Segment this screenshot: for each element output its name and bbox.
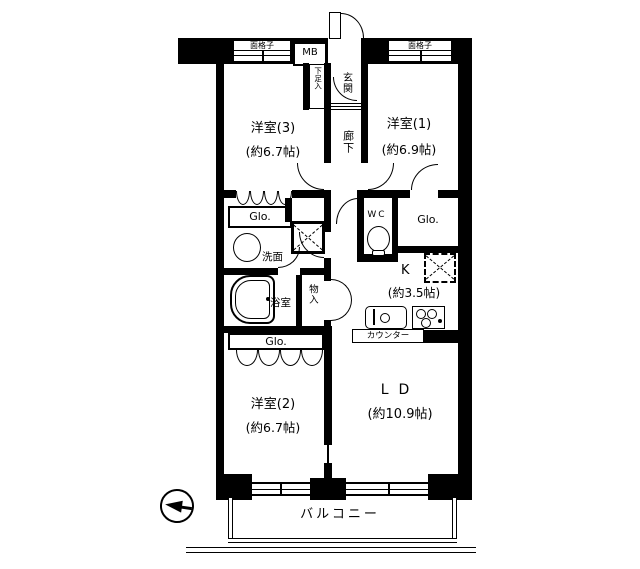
bathtub-icon bbox=[230, 275, 275, 324]
wall bbox=[324, 276, 331, 281]
wall-pillar bbox=[428, 474, 472, 500]
sliding-door bbox=[327, 445, 329, 463]
stove-icon bbox=[412, 306, 445, 329]
wall bbox=[216, 326, 332, 333]
room-ld-size: (約10.9帖) bbox=[350, 408, 450, 423]
meter-box-label: MB bbox=[295, 47, 325, 59]
entrance-step bbox=[331, 103, 361, 110]
counter-label: カウンター bbox=[353, 332, 423, 342]
room-western2-label: 洋室(2) bbox=[220, 398, 326, 413]
hallway-label: 廊下 bbox=[341, 130, 354, 154]
window-mullion bbox=[388, 482, 390, 496]
window-grille-label: 面格子 bbox=[389, 41, 451, 51]
wall bbox=[357, 198, 364, 260]
wall bbox=[216, 268, 278, 275]
closet-box: Glo. bbox=[228, 206, 292, 228]
wall bbox=[285, 198, 292, 222]
wall bbox=[324, 463, 332, 478]
sink-drain bbox=[380, 313, 390, 323]
closet-door-arc bbox=[411, 164, 438, 190]
room-western1-label: 洋室(1) bbox=[358, 118, 460, 133]
burner bbox=[421, 318, 431, 328]
toilet-label: WC bbox=[363, 210, 391, 220]
closet-label: Glo. bbox=[230, 336, 322, 349]
front-door-opening bbox=[328, 38, 361, 64]
window-grille-box: 面格子 bbox=[233, 40, 291, 62]
burner bbox=[427, 309, 437, 319]
wall-pillar bbox=[216, 474, 252, 500]
floor-plan: 面格子 MB 面格子 下足入 玄関 廊下 洋室(3) (約6.7帖) 洋室(1)… bbox=[0, 0, 640, 569]
refrigerator-icon bbox=[424, 253, 456, 283]
door-arc bbox=[336, 198, 358, 224]
sink-divider bbox=[373, 309, 375, 325]
bathtub-inner bbox=[235, 280, 270, 319]
door-arc bbox=[297, 163, 324, 190]
toilet-base bbox=[372, 250, 385, 256]
double-door-arc bbox=[331, 279, 352, 300]
closet-box: Glo. bbox=[228, 333, 324, 350]
wall bbox=[292, 190, 331, 198]
room-western2-size: (約6.7帖) bbox=[216, 421, 330, 435]
accordion-door bbox=[236, 350, 323, 366]
window-grille-label: 面格子 bbox=[234, 41, 290, 51]
door-arc bbox=[299, 232, 324, 258]
meter-box: MB bbox=[293, 42, 327, 66]
closet-label: Glo. bbox=[230, 211, 290, 224]
wall bbox=[216, 190, 236, 198]
wall bbox=[424, 330, 458, 343]
window bbox=[346, 482, 428, 496]
washbasin-icon bbox=[233, 233, 261, 262]
window-mullion bbox=[420, 51, 422, 61]
wall bbox=[300, 268, 331, 275]
door-arc bbox=[368, 163, 394, 190]
knob bbox=[438, 319, 442, 323]
front-door-arc bbox=[341, 13, 364, 38]
compass-icon bbox=[158, 487, 196, 525]
wall bbox=[458, 38, 472, 500]
room-western3-size: (約6.7帖) bbox=[216, 145, 330, 159]
wall bbox=[438, 190, 472, 198]
wall bbox=[296, 275, 302, 326]
window-mullion bbox=[262, 51, 264, 61]
balcony-rail bbox=[228, 498, 233, 542]
window-grille-box: 面格子 bbox=[388, 40, 452, 62]
counter-label-box: カウンター bbox=[352, 329, 424, 343]
balcony-rail bbox=[452, 498, 457, 542]
storage-label: 物入 bbox=[306, 284, 317, 305]
toilet-icon bbox=[367, 226, 390, 252]
shoe-storage-label: 下足入 bbox=[313, 67, 322, 90]
room-ld-label: LD bbox=[368, 382, 432, 398]
room-western3-label: 洋室(3) bbox=[220, 122, 326, 137]
kitchen-sink-icon bbox=[365, 306, 407, 329]
kitchen-size: (約3.5帖) bbox=[368, 287, 460, 301]
bathroom-label: 浴室 bbox=[270, 297, 291, 309]
wall bbox=[398, 246, 472, 253]
door-arc bbox=[333, 77, 357, 101]
balcony-label: バルコニー bbox=[288, 508, 392, 523]
accordion-door bbox=[236, 191, 292, 205]
ground-line bbox=[186, 547, 476, 553]
window-mullion bbox=[280, 482, 282, 496]
kitchen-label: K bbox=[401, 264, 410, 279]
wall bbox=[324, 198, 331, 232]
room-western1-size: (約6.9帖) bbox=[354, 143, 464, 157]
balcony-rail bbox=[228, 538, 457, 543]
closet-label: Glo. bbox=[400, 214, 456, 227]
front-door-leaf bbox=[329, 12, 341, 39]
wall-pillar bbox=[310, 478, 346, 500]
double-door-arc bbox=[331, 300, 352, 321]
door-arc bbox=[278, 247, 300, 268]
wall bbox=[357, 190, 410, 198]
